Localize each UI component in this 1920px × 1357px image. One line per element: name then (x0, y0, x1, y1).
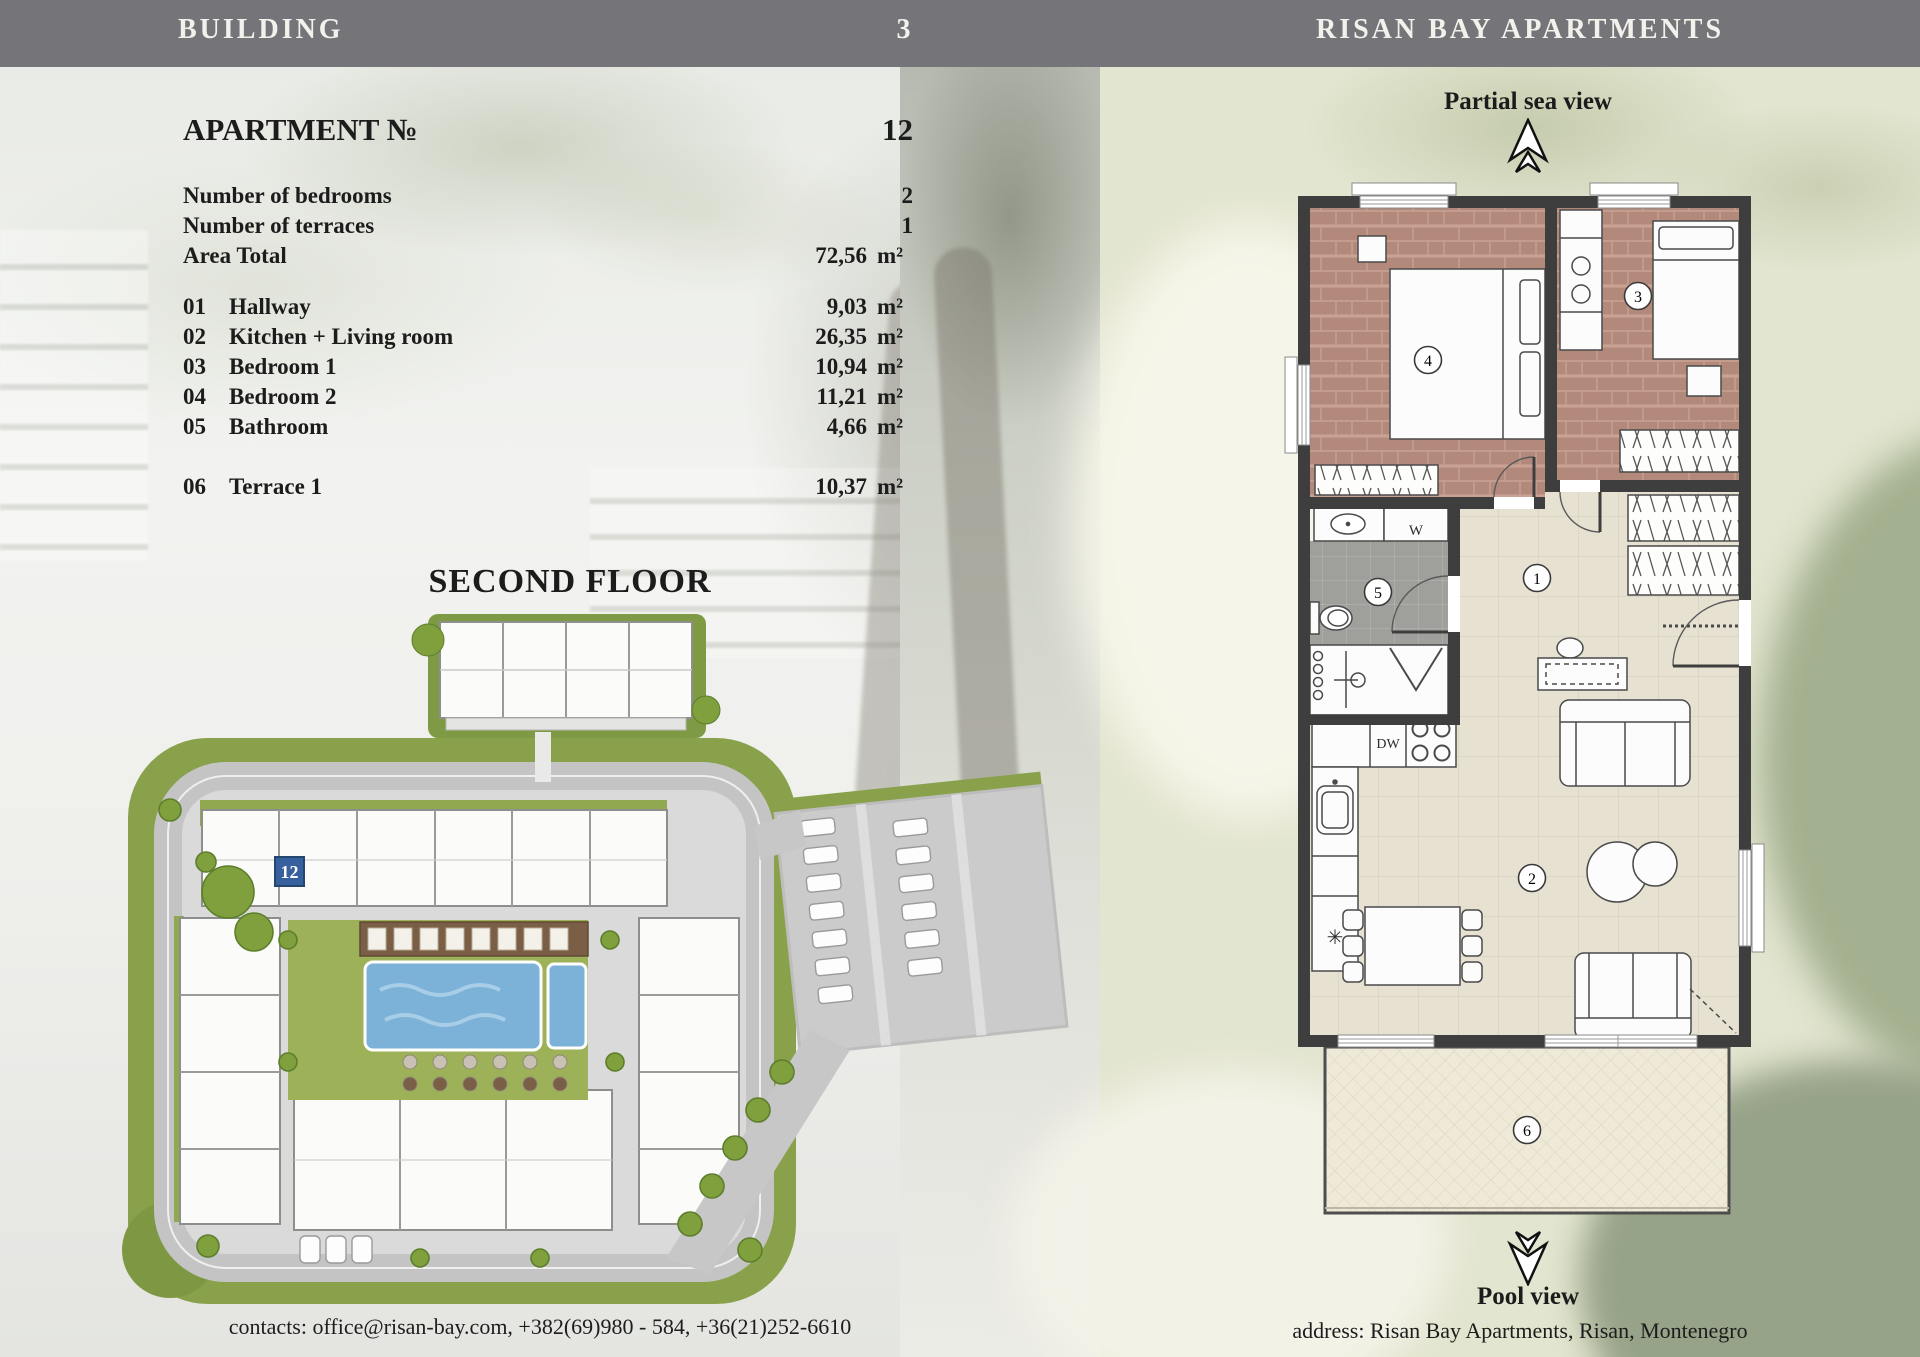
header-building-number: 3 (860, 14, 950, 46)
room-area: 10,94 (815, 352, 867, 382)
room-row: 03 Bedroom 1 10,94m² (183, 352, 913, 382)
room-unit: m² (867, 352, 913, 382)
room-unit: m² (867, 382, 913, 412)
summary-row: Area Total 72,56m² (183, 241, 913, 271)
svg-text:5: 5 (1374, 585, 1382, 602)
room-number: 04 (183, 382, 229, 412)
dishwasher-label: DW (1376, 737, 1400, 752)
room-label: Bedroom 2 (229, 382, 779, 412)
room-unit: m² (867, 412, 913, 442)
room-area: 26,35 (815, 322, 867, 352)
parking-lot (774, 772, 1067, 1055)
room-area: 10,37 (815, 472, 867, 502)
room-number: 01 (183, 292, 229, 322)
svg-text:4: 4 (1424, 353, 1432, 370)
room-unit: m² (867, 322, 913, 352)
room-label: Hallway (229, 292, 779, 322)
summary-unit: m² (867, 241, 913, 271)
room-row: 01 Hallway 9,03m² (183, 292, 913, 322)
room-label: Bedroom 1 (229, 352, 779, 382)
summary-value: 2 (902, 181, 914, 211)
badge-hallway: 1 (1524, 565, 1551, 592)
room-label: Kitchen + Living room (229, 322, 779, 352)
site-plan-title: SECOND FLOOR (370, 563, 770, 601)
room-number: 03 (183, 352, 229, 382)
room-number: 06 (183, 472, 229, 502)
room-row: 06 Terrace 1 10,37m² (183, 472, 913, 502)
room-number: 02 (183, 322, 229, 352)
badge-bathroom: 5 (1365, 579, 1392, 606)
site-plan-svg: 12 (110, 610, 1090, 1310)
room-row: 02 Kitchen + Living room 26,35m² (183, 322, 913, 352)
summary-label: Area Total (183, 241, 779, 271)
room-row: 04 Bedroom 2 11,21m² (183, 382, 913, 412)
pool-view-arrow-icon (1506, 1228, 1550, 1286)
svg-text:6: 6 (1523, 1123, 1531, 1140)
badge-bedroom2: 4 (1415, 347, 1442, 374)
washer-label: W (1409, 523, 1424, 539)
contacts-line: contacts: office@risan-bay.com, +382(69)… (60, 1314, 1020, 1340)
room-number: 05 (183, 412, 229, 442)
bathroom-room (1310, 507, 1448, 715)
room-row: 05 Bathroom 4,66m² (183, 412, 913, 442)
unit-12-marker-label: 12 (281, 862, 299, 882)
room-label: Bathroom (229, 412, 779, 442)
badge-living: 2 (1519, 865, 1546, 892)
brochure-page: BUILDING 3 RISAN BAY APARTMENTS APARTMEN… (0, 0, 1920, 1357)
unit-12-marker: 12 (275, 857, 304, 886)
apartment-title-label: APARTMENT № (183, 110, 779, 150)
summary-value: 1 (902, 211, 914, 241)
apartment-number-value: 12 (882, 110, 913, 150)
address-line: address: Risan Bay Apartments, Risan, Mo… (1190, 1318, 1850, 1344)
site-plan-pool-area (288, 920, 588, 1100)
svg-text:3: 3 (1634, 289, 1642, 306)
freezer-icon: ✳ (1327, 927, 1344, 949)
sea-view-arrow-icon (1506, 118, 1550, 176)
room-area: 9,03 (827, 292, 867, 322)
summary-label: Number of bedrooms (183, 181, 779, 211)
header-brand: RISAN BAY APARTMENTS (1160, 14, 1880, 46)
room-unit: m² (867, 472, 913, 502)
background-building (0, 230, 148, 560)
summary-row: Number of bedrooms 2 (183, 181, 913, 211)
parked-cars (300, 1236, 372, 1263)
badge-bedroom1: 3 (1625, 283, 1652, 310)
room-label: Terrace 1 (229, 472, 779, 502)
apartment-title-row: APARTMENT № 12 (183, 110, 913, 150)
room-area: 4,66 (827, 412, 867, 442)
summary-value: 72,56 (815, 241, 867, 271)
badge-terrace: 6 (1514, 1117, 1541, 1144)
summary-row: Number of terraces 1 (183, 211, 913, 241)
room-area: 11,21 (817, 382, 867, 412)
svg-text:2: 2 (1528, 871, 1536, 888)
room-unit: m² (867, 292, 913, 322)
sea-view-label: Partial sea view (1328, 88, 1728, 116)
pool-view-label: Pool view (1328, 1283, 1728, 1311)
summary-label: Number of terraces (183, 211, 779, 241)
header-bar: BUILDING 3 RISAN BAY APARTMENTS (0, 0, 1920, 67)
floor-plan-svg: W DW ✳ 1 2 3 4 5 6 (1282, 180, 1767, 1232)
header-building-label: BUILDING (178, 14, 344, 46)
svg-text:1: 1 (1533, 571, 1541, 588)
